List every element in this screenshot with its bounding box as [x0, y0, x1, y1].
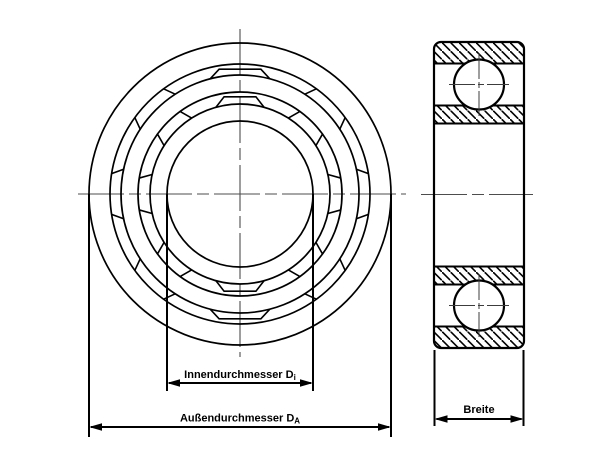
bearing-diagram: Innendurchmesser Di Außendurchmesser DA …: [0, 0, 600, 470]
inner-diameter-label: Innendurchmesser Di: [184, 369, 296, 382]
outer-diameter-label: Außendurchmesser DA: [180, 413, 300, 426]
width-label: Breite: [463, 404, 494, 416]
